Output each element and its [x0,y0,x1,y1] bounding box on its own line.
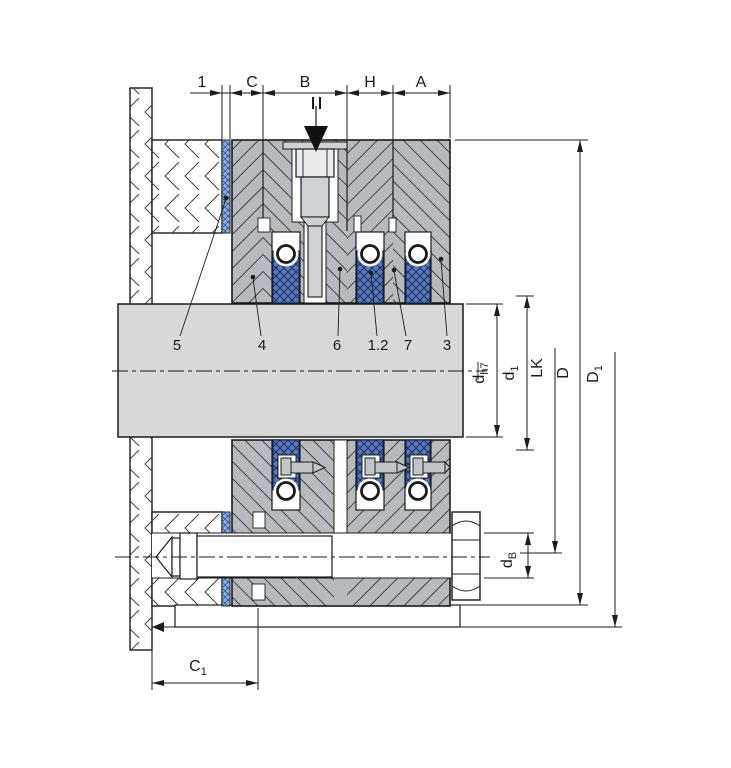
spring-l3 [410,483,427,500]
hex-nut [452,512,480,600]
screw-head [296,149,334,177]
dim-label-h: H [364,74,376,91]
lower-notch-1 [253,512,265,528]
part-label-5: 5 [173,337,181,354]
seal-cross-section-drawing: 1 C B H A dh7 d1 LK D [0,0,731,768]
part-label-7: 7 [404,337,412,354]
dim-label-c: C [246,74,258,91]
spring-u1 [278,246,295,263]
part-label-1-2: 1.2 [368,337,389,354]
part-label-3: 3 [443,337,451,354]
screw-pin [308,226,322,297]
step-notch-2 [354,216,361,232]
spring-l1 [278,483,295,500]
part-label-6: 6 [333,337,341,354]
dim-label-a: A [416,74,427,91]
bolt-collar [180,533,197,579]
dim-label-outer-dia: D [555,367,572,379]
lower-notch-2 [252,584,265,600]
dim-label-b: B [300,74,311,91]
wall-foot [175,605,460,627]
step-notch-3 [389,218,396,232]
main-shaft [112,304,487,437]
step-notch-1 [258,218,270,232]
technical-drawing-page: 1 C B H A dh7 d1 LK D [0,0,731,768]
dim-label-gap: 1 [198,74,207,91]
screw-body [301,177,329,217]
gasket-upper-hatch [222,140,230,233]
spring-l2 [362,483,379,500]
lower-packing-sets [272,440,450,510]
wall-block-upper-hatch [152,140,222,233]
housing-seam [334,440,347,533]
dim-label-bolt-circle: LK [529,358,546,378]
spring-u3 [410,246,427,263]
part-label-4: 4 [258,337,266,354]
spring-u2 [362,246,379,263]
